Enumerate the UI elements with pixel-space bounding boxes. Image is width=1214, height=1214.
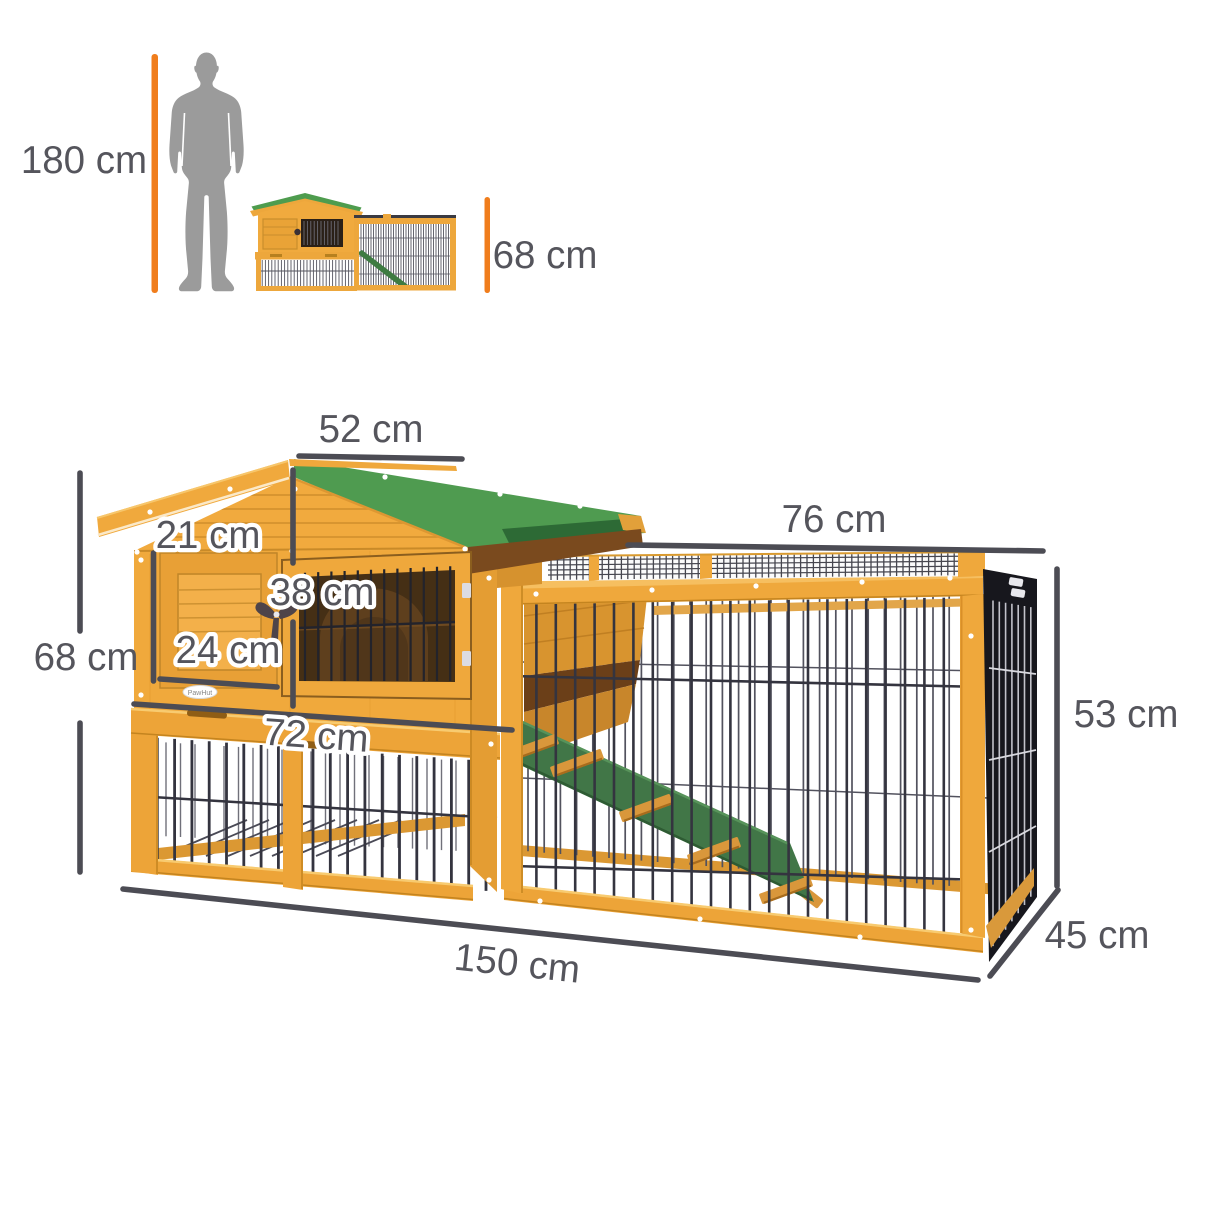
svg-text:45 cm: 45 cm xyxy=(1045,914,1150,957)
svg-text:72 cm: 72 cm xyxy=(262,711,370,761)
svg-text:PawHut: PawHut xyxy=(188,690,213,697)
svg-text:53 cm: 53 cm xyxy=(1074,693,1179,736)
svg-text:21 cm: 21 cm xyxy=(156,514,261,557)
svg-text:68 cm: 68 cm xyxy=(493,234,598,277)
svg-text:180 cm: 180 cm xyxy=(21,139,147,182)
svg-text:38 cm: 38 cm xyxy=(270,571,375,614)
svg-text:76 cm: 76 cm xyxy=(782,498,887,541)
svg-text:52 cm: 52 cm xyxy=(319,408,424,451)
svg-text:68 cm: 68 cm xyxy=(34,636,139,679)
svg-text:24 cm: 24 cm xyxy=(176,629,281,672)
